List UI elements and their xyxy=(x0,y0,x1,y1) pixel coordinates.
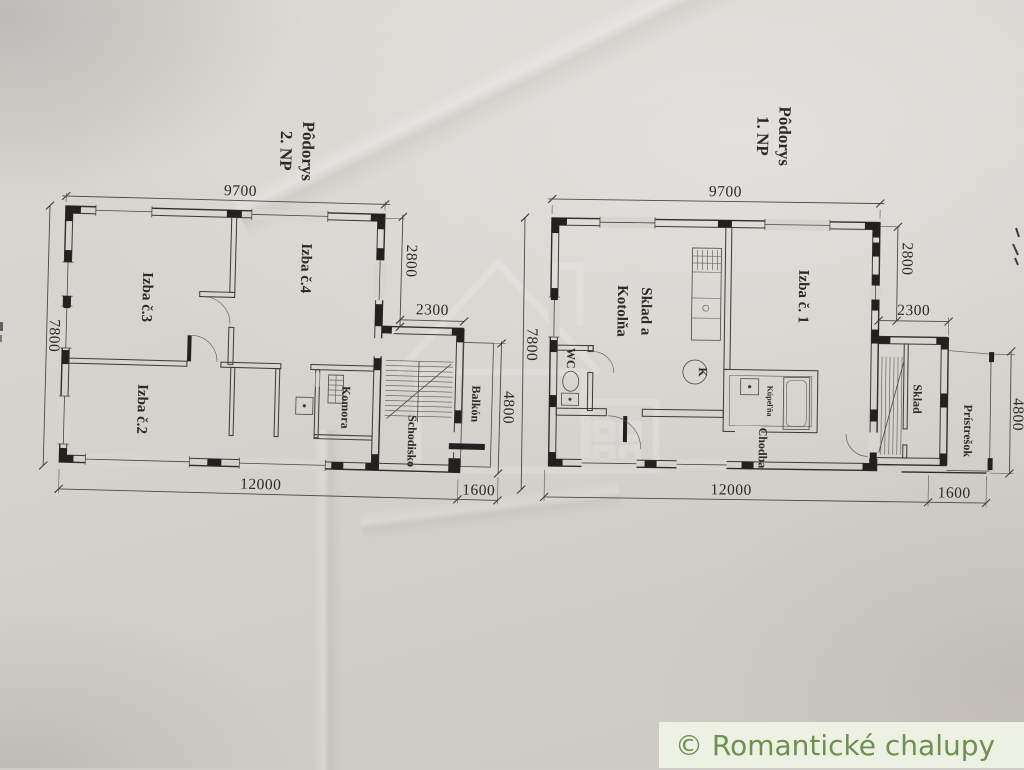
room-label-izba4: Izba č.4 xyxy=(297,243,314,294)
dim-left-2800: 2800 xyxy=(402,244,420,277)
right-plan-title: Pôdorys xyxy=(775,106,795,166)
dim-left-bottom: 12000 xyxy=(240,476,282,494)
room-label-wc: WC xyxy=(564,348,578,369)
left-plan-interior-walls xyxy=(67,213,378,440)
dim-right-2300: 2300 xyxy=(897,302,930,319)
boiler-symbol: K xyxy=(696,367,710,377)
dim-right-1600: 1600 xyxy=(938,484,971,501)
room-label-sklad-a: Sklad a xyxy=(637,287,654,336)
right-plan-title-floor: 1. NP xyxy=(753,116,773,156)
room-label-kotolna: Kotolňa xyxy=(613,285,630,337)
room-label-pristresok: Prístrešok xyxy=(961,405,976,458)
dim-right-4800: 4800 xyxy=(1009,398,1024,431)
room-label-chodba: Chodba xyxy=(756,428,771,469)
left-plan-wall-piers xyxy=(59,206,385,470)
watermark-credit-label: © Romantické chalupy xyxy=(675,729,995,762)
room-label-izba2: Izba č.2 xyxy=(133,384,150,434)
left-plan-windows xyxy=(57,204,387,472)
dim-right-side: 7800 xyxy=(523,328,540,361)
dim-left-top: 9700 xyxy=(224,182,257,200)
room-label-komora: Komora xyxy=(338,386,353,429)
room-label-kupelna: Kúpeľňa xyxy=(765,386,774,417)
dim-right-bottom: 12000 xyxy=(710,481,751,499)
dim-left-4800: 4800 xyxy=(499,391,517,424)
room-label-sklad: Sklad xyxy=(910,384,924,414)
dim-right-top: 9700 xyxy=(709,183,742,200)
watermark-credit: © Romantické chalupy xyxy=(659,722,1024,768)
dim-left-side: 7800 xyxy=(45,319,63,352)
floorplan-drawing: Pôdorys 2. NP xyxy=(0,0,1024,768)
right-plan-interior: K xyxy=(556,225,820,452)
dim-left-1600: 1600 xyxy=(462,481,495,499)
room-label-izba3: Izba č.3 xyxy=(138,272,155,322)
left-plan-title-floor: 2. NP xyxy=(276,131,296,171)
room-label-izba1: Izba č. 1 xyxy=(795,270,812,324)
left-plan-title: Pôdorys xyxy=(298,121,319,181)
room-label-balkon: Balkón xyxy=(468,385,483,422)
dim-right-2800: 2800 xyxy=(898,242,915,275)
dim-left-2300: 2300 xyxy=(416,301,449,319)
room-label-schodisko: Schodisko xyxy=(404,415,419,467)
